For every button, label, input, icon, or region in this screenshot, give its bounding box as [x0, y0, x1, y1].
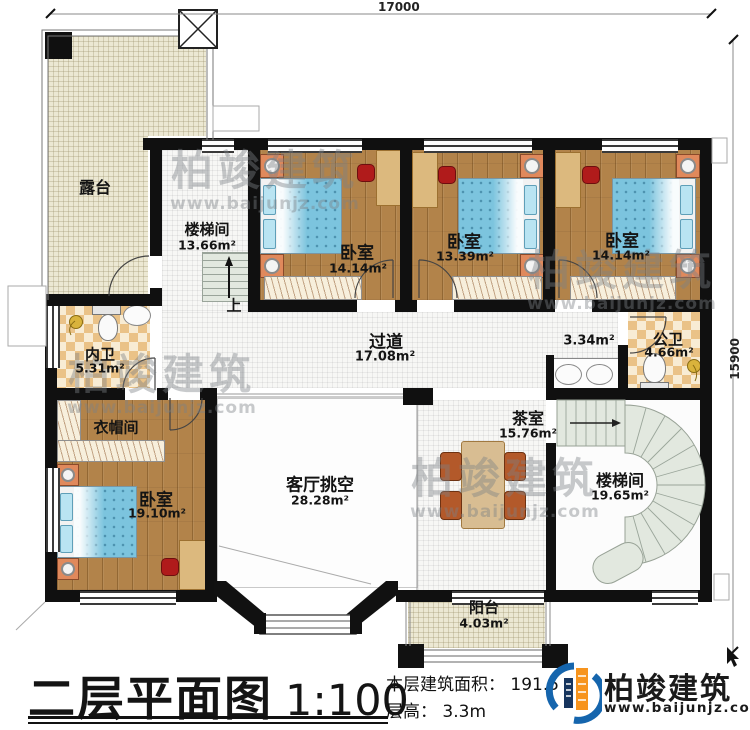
room-area-wash-area: 3.34m²: [563, 334, 614, 349]
wall: [618, 345, 628, 390]
wall: [248, 300, 357, 312]
stair-up-label: 上: [226, 295, 241, 316]
room-area-stair-spiral: 19.65m²: [591, 488, 649, 503]
room-area-balcony: 4.03m²: [459, 616, 508, 631]
room-area-stair-upper: 13.66m²: [178, 238, 236, 253]
brand-website: www.baijunjz.com: [604, 700, 750, 716]
room-area-tea-room: 15.76m²: [499, 426, 557, 441]
window: [46, 468, 60, 552]
wall: [150, 138, 162, 256]
window: [46, 306, 60, 368]
toilet-icon: [98, 314, 118, 341]
desk: [412, 152, 438, 208]
floorplan-sheet: 露台 楼梯间 13.66m² 卧室 14.14m² 卧室 13.39m² 卧室 …: [0, 0, 750, 730]
nightstand: [520, 154, 544, 178]
nightstand: [57, 558, 79, 580]
room-area-public-bath: 4.66m²: [644, 345, 693, 360]
floor-height-note: 层高： 3.3m: [386, 697, 486, 722]
wall: [395, 300, 417, 312]
desk: [376, 150, 402, 206]
wall: [45, 294, 162, 306]
window: [652, 591, 698, 605]
chair: [438, 166, 456, 184]
chair: [161, 558, 179, 576]
wall: [205, 388, 217, 590]
room-area-bedroom1: 14.14m²: [329, 261, 387, 276]
brand-logo-icon: [544, 654, 602, 724]
room-label-stair-upper: 楼梯间: [184, 219, 229, 240]
sink-icon: [123, 305, 151, 326]
window: [424, 139, 532, 153]
wall: [700, 138, 712, 602]
desk: [555, 152, 581, 208]
shower-head-icon: [69, 315, 83, 329]
wall: [546, 355, 554, 390]
room-area-bedroom2: 13.39m²: [436, 249, 494, 264]
title-underline: [28, 716, 388, 724]
room-area-bedroom3: 14.14m²: [592, 248, 650, 263]
terrace-floor-left: [48, 36, 148, 294]
wall: [546, 388, 712, 400]
watermark: 柏竣建筑www.baijunjz.com: [410, 458, 600, 522]
mouse-cursor-icon: [724, 646, 744, 670]
room-label-balcony: 阳台: [469, 597, 499, 618]
shower-head-icon: [687, 359, 701, 373]
dimension-top: 17000: [378, 0, 420, 14]
nightstand: [57, 464, 79, 486]
room-area-inner-bath: 5.31m²: [75, 361, 124, 376]
bed: [57, 486, 137, 558]
room-area-corridor: 17.08m²: [355, 350, 415, 365]
wardrobe: [57, 440, 165, 462]
dimension-right: 15900: [728, 338, 742, 380]
wall: [403, 388, 433, 405]
wall: [400, 138, 412, 312]
wardrobe: [264, 276, 362, 300]
floor-area-note: 本层建筑面积： 191.5: [386, 670, 559, 695]
chair: [582, 166, 600, 184]
room-label-cloakroom: 衣帽间: [93, 417, 138, 438]
nightstand: [676, 154, 700, 178]
sink-icon: [555, 364, 582, 385]
sink-icon: [586, 364, 613, 385]
desk: [179, 540, 207, 590]
column: [45, 32, 72, 59]
room-label-terrace: 露台: [79, 174, 111, 198]
room-area-bedroom4: 19.10m²: [128, 506, 186, 521]
room-area-living-void: 28.28m²: [291, 493, 349, 508]
watermark: 柏竣建筑www.baijunjz.com: [170, 150, 360, 214]
bay-window: [214, 581, 398, 634]
nightstand: [260, 254, 284, 278]
window: [80, 591, 176, 605]
wall: [150, 288, 162, 306]
window: [602, 139, 678, 153]
